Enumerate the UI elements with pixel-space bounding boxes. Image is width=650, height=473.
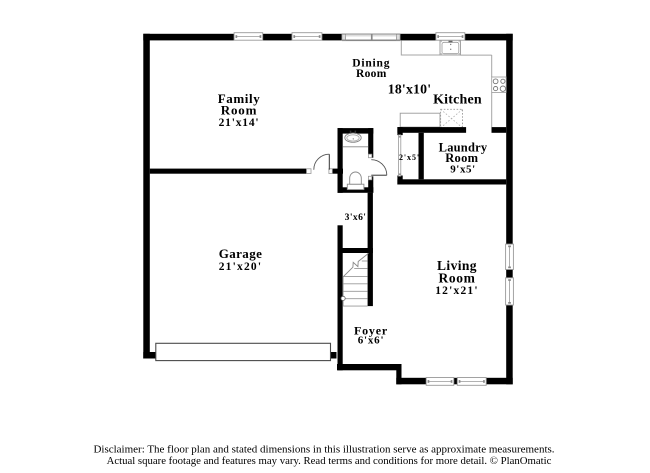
svg-text:2'x5': 2'x5' — [399, 153, 420, 162]
svg-text:12'x21': 12'x21' — [435, 285, 479, 297]
svg-text:21'x20': 21'x20' — [219, 261, 263, 273]
svg-text:3'x6': 3'x6' — [345, 212, 367, 223]
svg-text:Actual square footage and feat: Actual square footage and features may v… — [107, 455, 552, 467]
svg-text:Room: Room — [439, 270, 476, 285]
svg-text:Disclaimer: The floor plan and: Disclaimer: The floor plan and stated di… — [93, 443, 554, 455]
svg-text:9'x5': 9'x5' — [450, 164, 476, 176]
svg-text:Kitchen: Kitchen — [433, 92, 482, 107]
svg-text:6'x6': 6'x6' — [358, 335, 385, 347]
svg-text:Room: Room — [356, 68, 387, 80]
svg-text:Garage: Garage — [219, 246, 263, 261]
svg-text:Room: Room — [221, 103, 257, 118]
svg-text:21'x14': 21'x14' — [219, 117, 260, 129]
svg-text:18'x10': 18'x10' — [388, 81, 432, 96]
